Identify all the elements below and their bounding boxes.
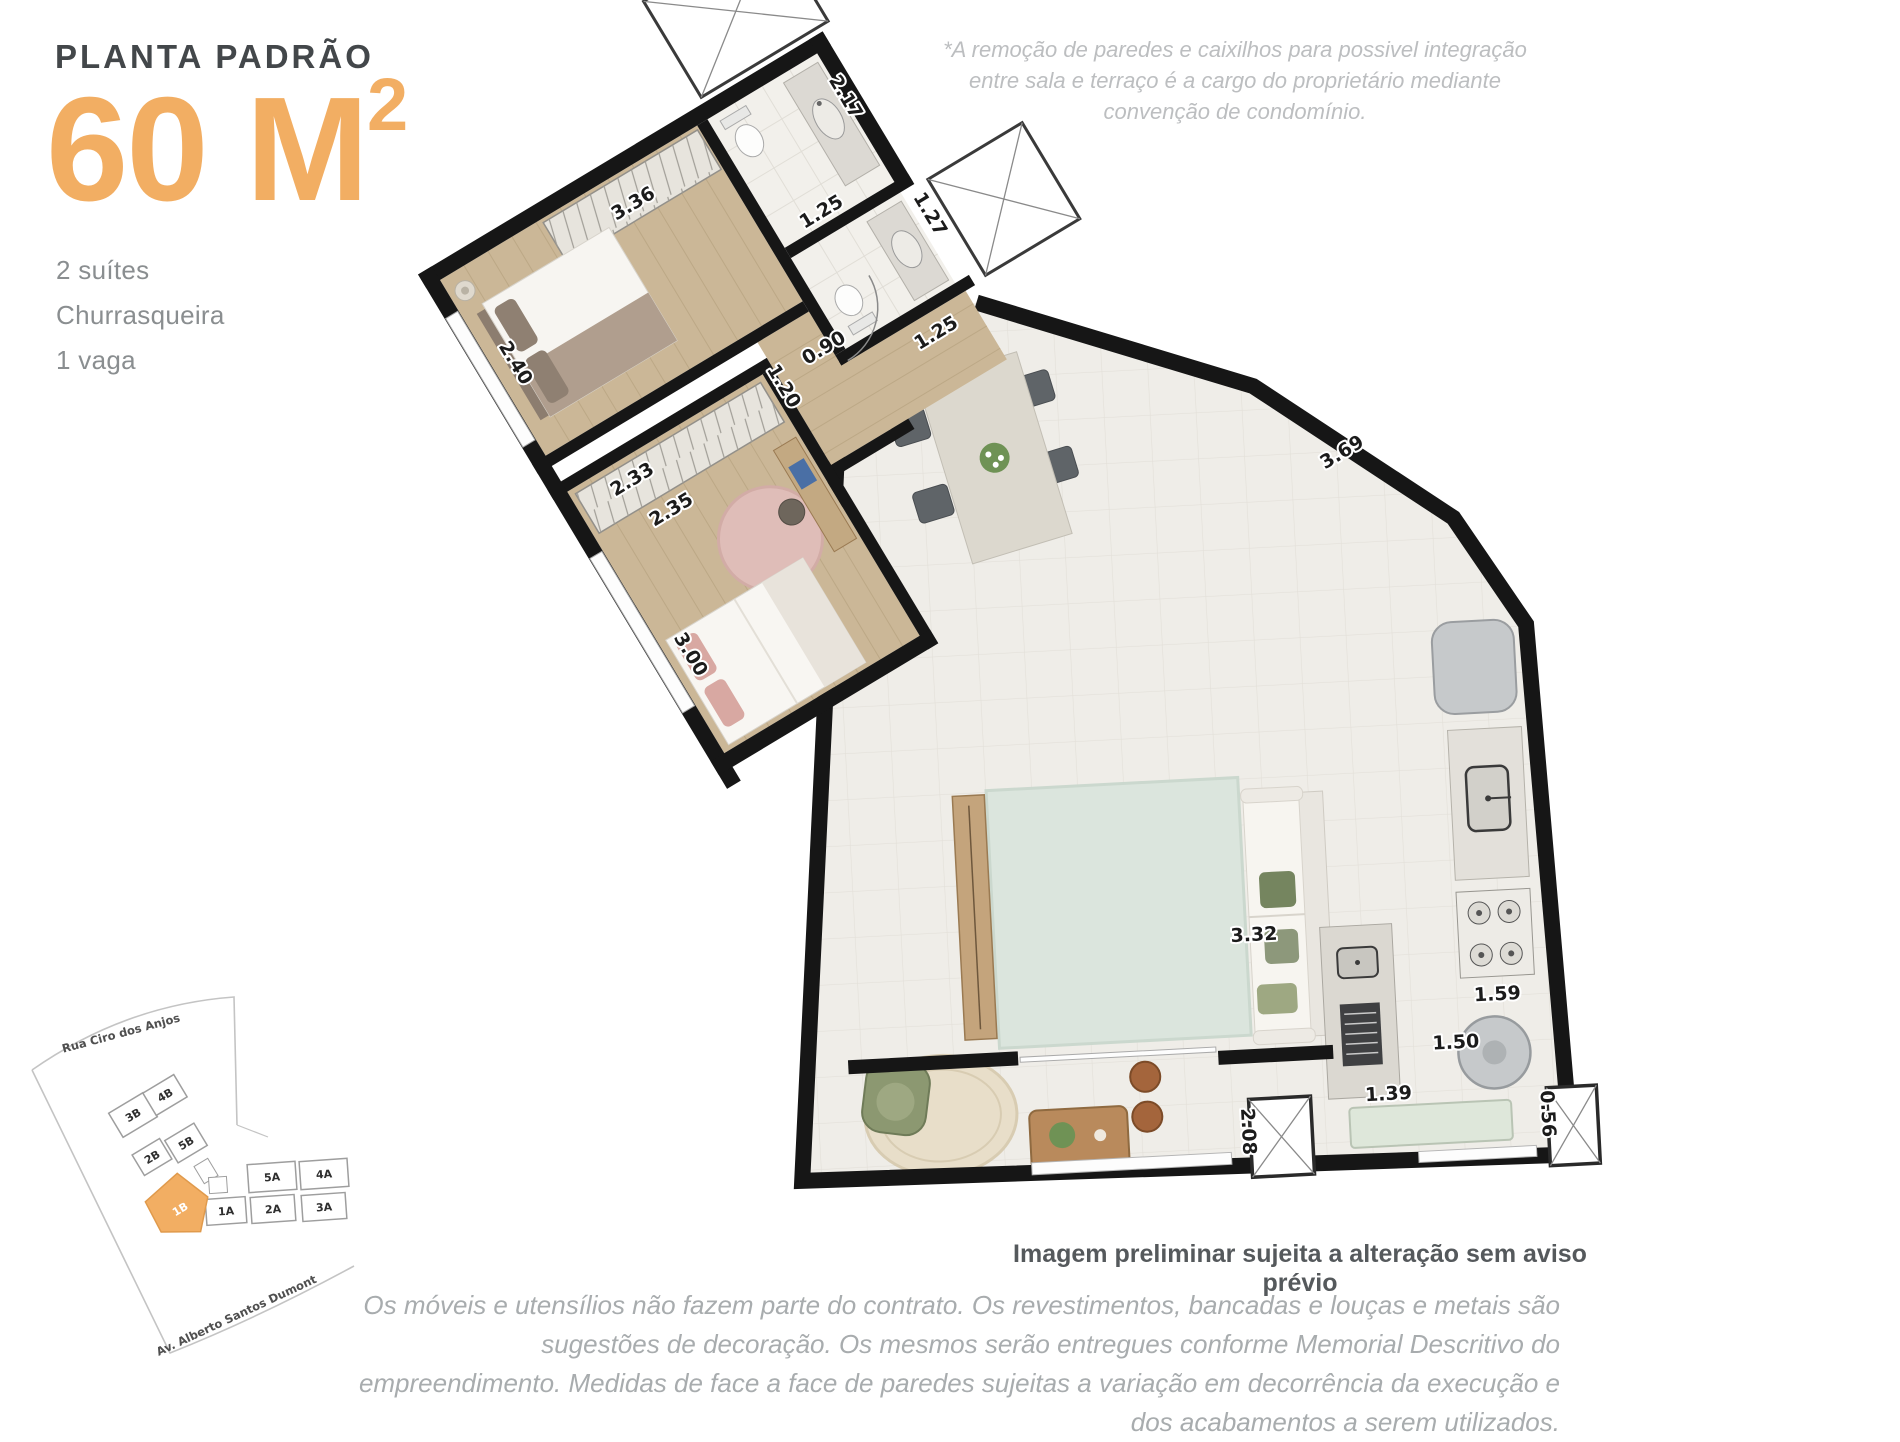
sofa-pillow <box>1259 871 1297 909</box>
shaft-box <box>928 123 1080 276</box>
measurement-label: 1.50 <box>1432 1030 1480 1054</box>
churrasqueira <box>1320 924 1401 1100</box>
terrace-stool <box>1132 1101 1164 1133</box>
building-a-block: 5A 4A 1A 2A 3A <box>205 1158 349 1225</box>
street-label: Av. Alberto Santos Dumont <box>154 1272 319 1359</box>
unit-cell-2a: 2A <box>265 1202 283 1216</box>
building-b-block: 3B 4B 2B 5B <box>109 1075 218 1184</box>
street-label: Rua Ciro dos Anjos <box>60 1011 181 1056</box>
sofa <box>1240 785 1335 1045</box>
sofa-throw <box>1257 983 1299 1015</box>
living-rug <box>986 777 1251 1048</box>
terrace-bench <box>1349 1100 1513 1148</box>
terrace-stool <box>1129 1061 1161 1093</box>
measurement-label: 2.08 <box>1236 1107 1260 1155</box>
unit-cell-5a: 5A <box>264 1170 282 1184</box>
measurement-label: 0.56 <box>1535 1090 1559 1138</box>
lot-outline <box>237 1125 268 1137</box>
measurement-label: 1.59 <box>1473 982 1521 1006</box>
stove <box>1456 888 1534 978</box>
unit-cell-1a: 1A <box>218 1204 236 1218</box>
unit-cell-4a: 4A <box>316 1167 334 1181</box>
site-map: Rua Ciro dos Anjos Av. Alberto Santos Du… <box>10 985 370 1375</box>
measurement-label: 1.39 <box>1364 1082 1412 1106</box>
measurement-label: 3.32 <box>1230 923 1278 947</box>
refrigerator <box>1431 619 1518 715</box>
unit-cell-3a: 3A <box>316 1200 334 1214</box>
